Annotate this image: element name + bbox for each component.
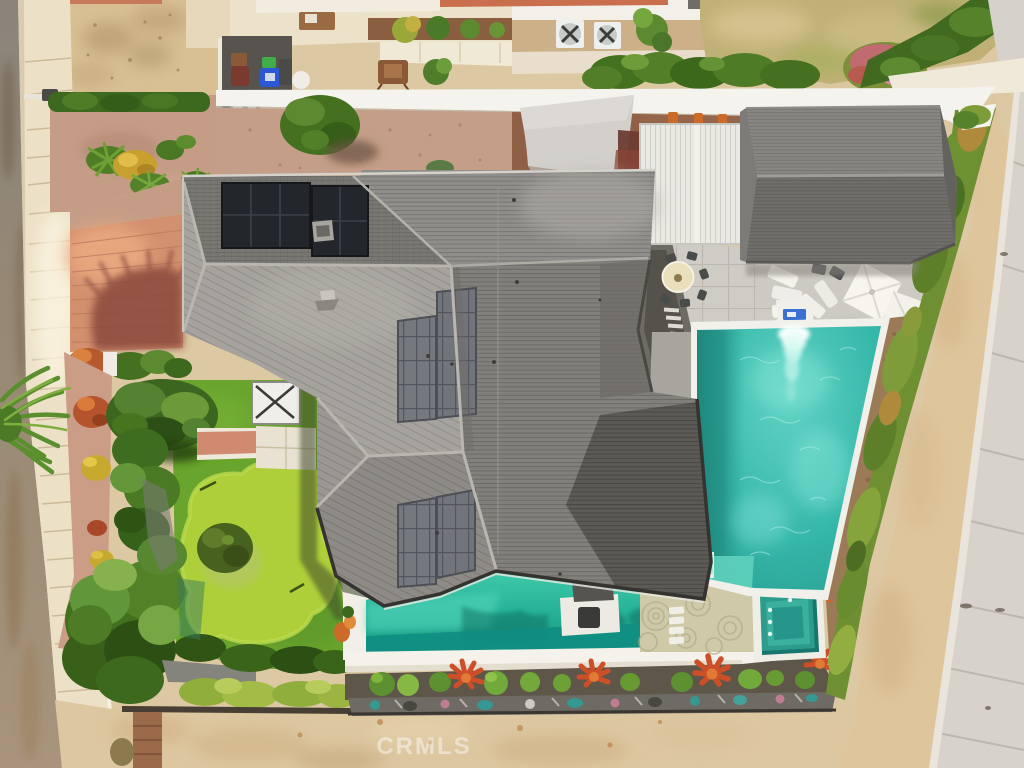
- svg-text:CRMLS: CRMLS: [376, 733, 471, 760]
